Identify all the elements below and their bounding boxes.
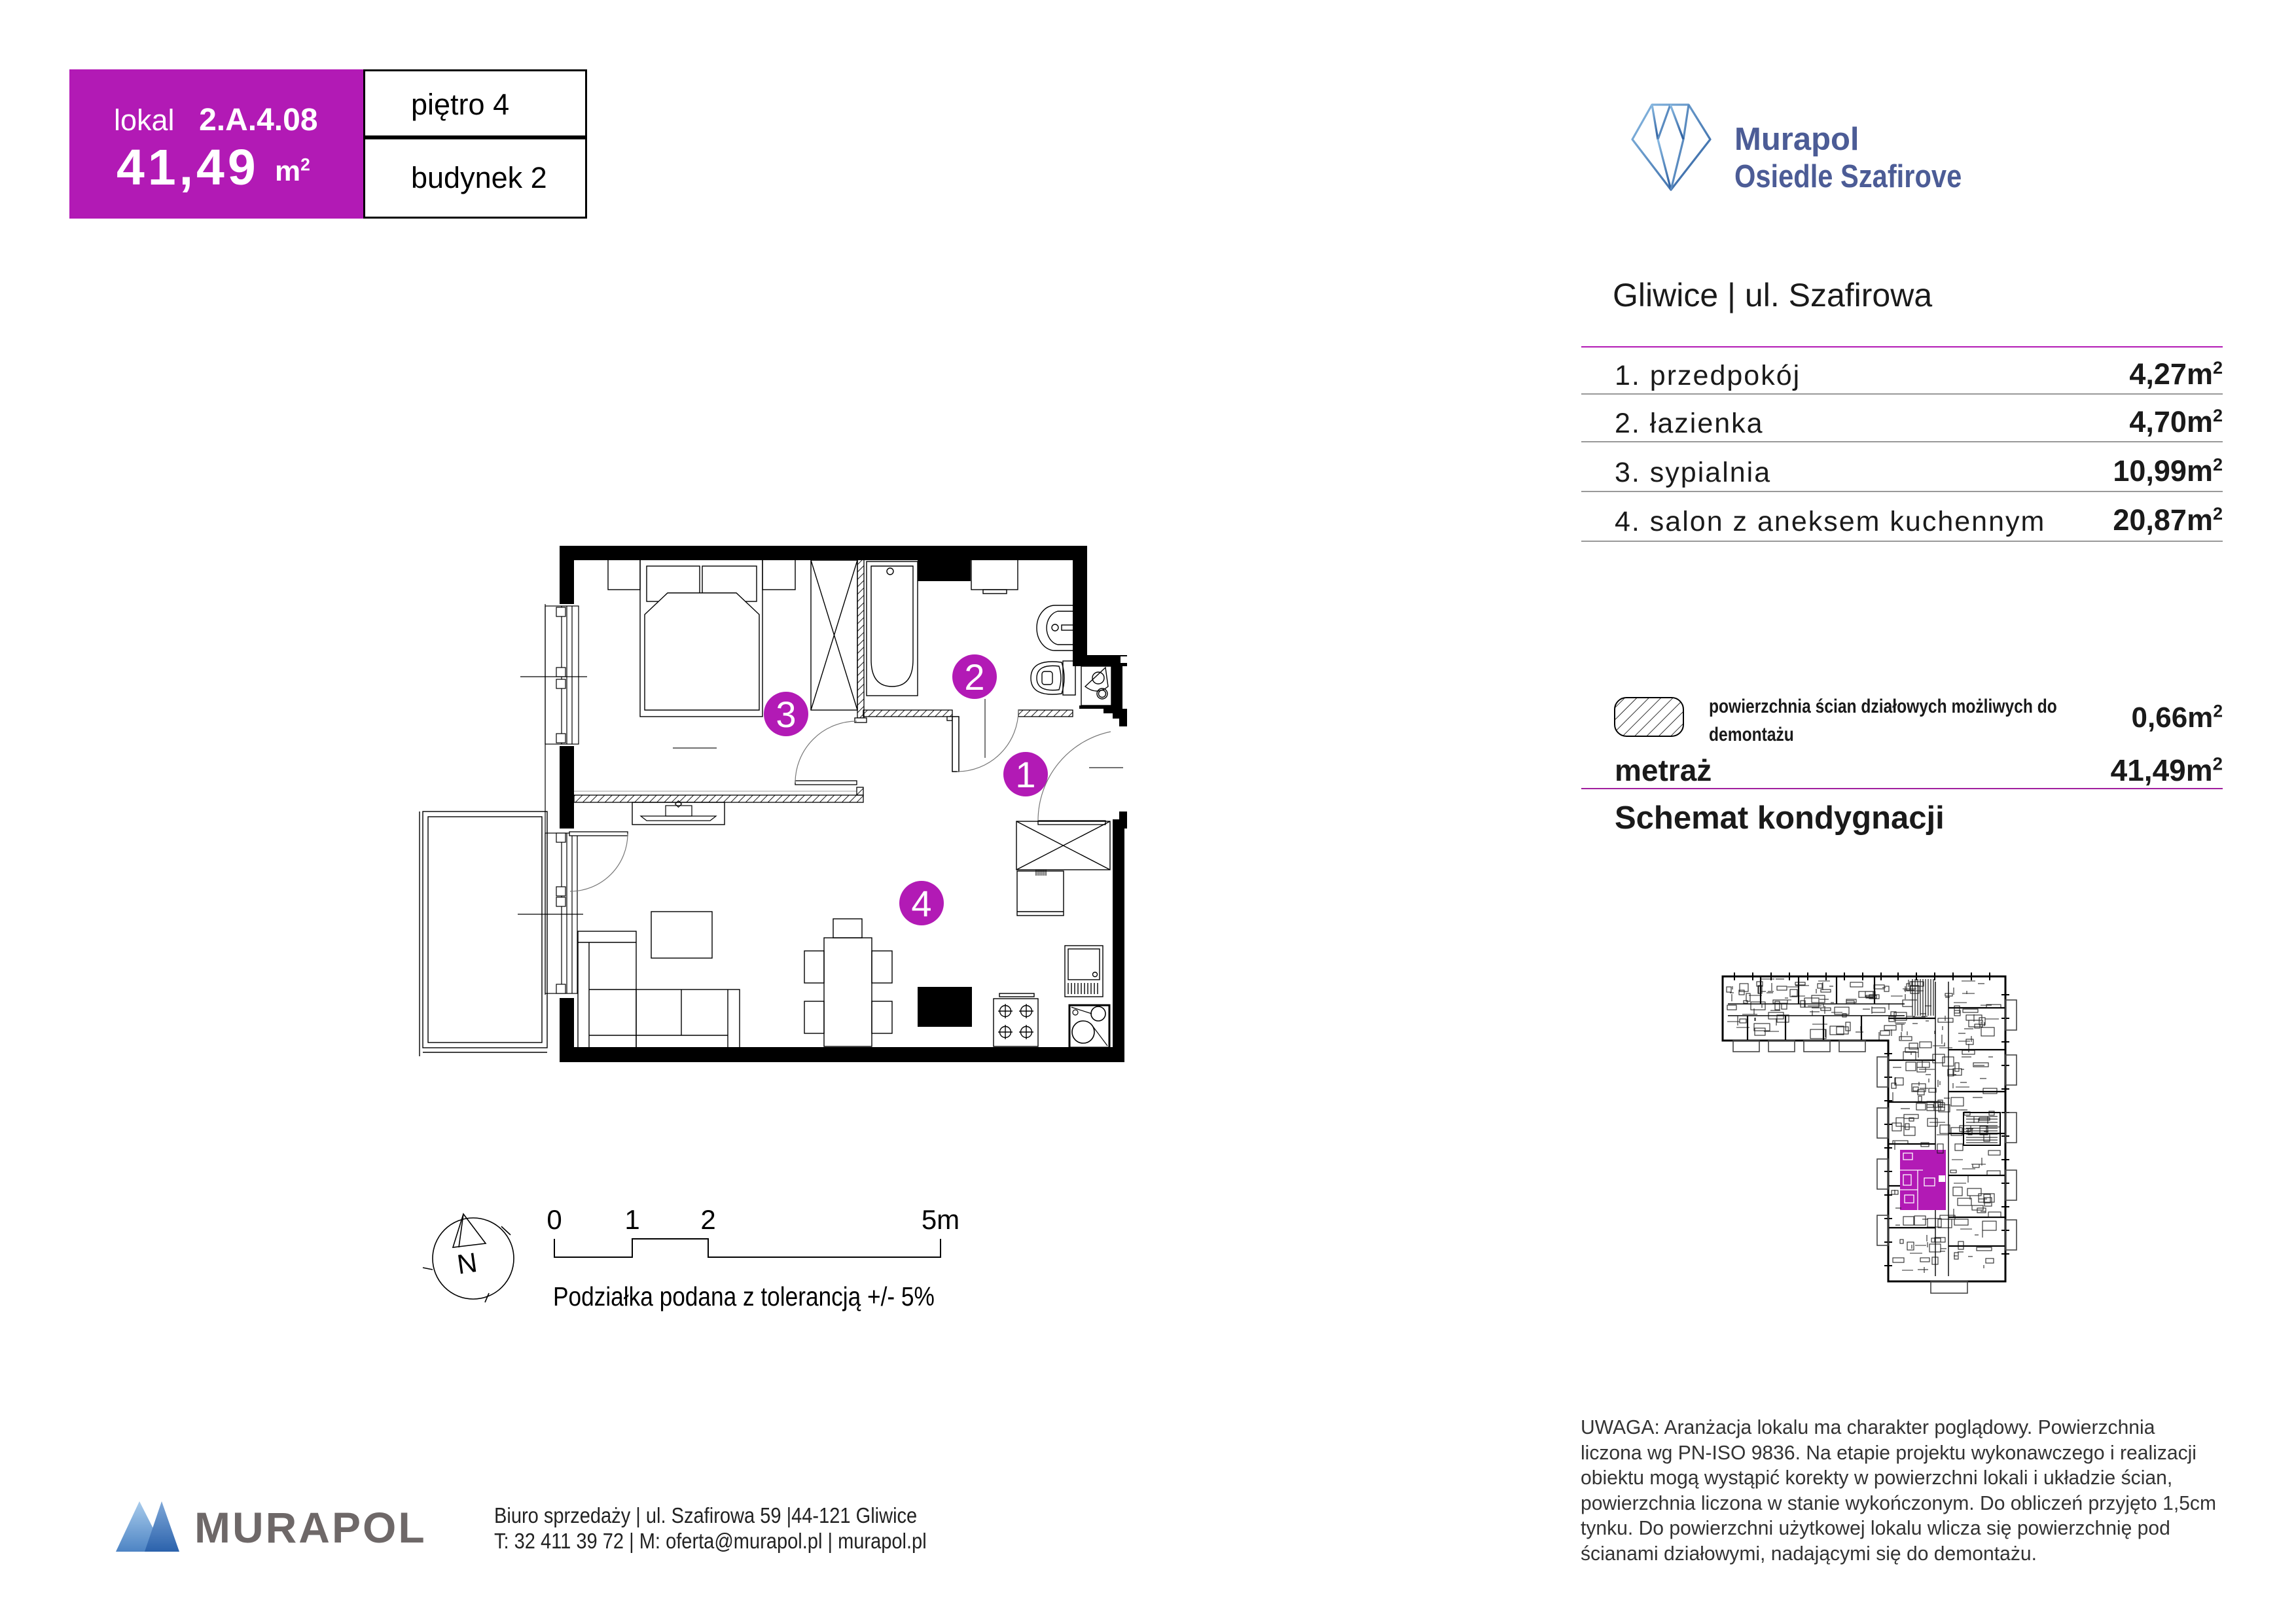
svg-text:2: 2 — [700, 1204, 715, 1235]
svg-text:2: 2 — [964, 656, 984, 698]
svg-text:3: 3 — [776, 694, 796, 735]
svg-text:1: 1 — [1015, 754, 1035, 795]
svg-text:Podziałka podana z tolerancją: Podziałka podana z tolerancją +/- 5% — [553, 1282, 935, 1312]
svg-text:4: 4 — [911, 883, 931, 924]
svg-text:0: 0 — [547, 1204, 562, 1235]
svg-text:1: 1 — [624, 1204, 639, 1235]
svg-text:N: N — [455, 1247, 479, 1280]
svg-text:5m: 5m — [922, 1204, 960, 1235]
